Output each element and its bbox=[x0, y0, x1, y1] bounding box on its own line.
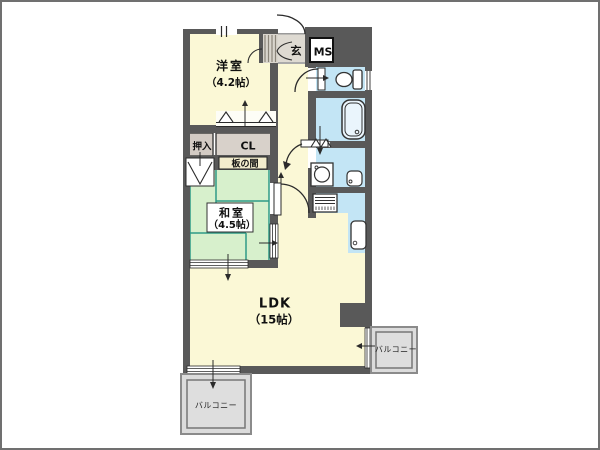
wall-ldk-pillar bbox=[340, 303, 372, 327]
washing-machine-icon bbox=[311, 163, 333, 186]
sliding-door bbox=[190, 260, 248, 268]
balcony-right-label: バルコニー bbox=[375, 346, 417, 354]
entrance-door-arc bbox=[277, 15, 305, 34]
toilet-door-gap bbox=[308, 68, 316, 91]
oshiire-label: 押入 bbox=[192, 142, 211, 152]
entrance-threshold bbox=[278, 33, 305, 35]
entrance-label: 玄 bbox=[291, 46, 302, 57]
genkan-step-edge bbox=[278, 62, 305, 64]
ldk-name: LDK bbox=[259, 298, 291, 311]
window-band bbox=[365, 71, 372, 90]
wall-hall-right2 bbox=[308, 91, 316, 143]
western-room-size: （4.2帖） bbox=[206, 78, 256, 89]
meter-box-label: MS bbox=[314, 47, 333, 58]
japanese-room-size: （4.5帖） bbox=[208, 221, 256, 231]
kitchen-sink-icon bbox=[351, 221, 366, 249]
floor-plan-drawing bbox=[2, 2, 598, 448]
itanoma-label: 板の間 bbox=[231, 161, 258, 170]
wall-left bbox=[183, 29, 190, 374]
closet-label: CL bbox=[240, 141, 255, 152]
bathtub-icon bbox=[342, 100, 365, 139]
wall-toilet-bath bbox=[308, 91, 365, 98]
wall-washitsu-bottom-r bbox=[248, 260, 278, 268]
ldk-size: （15帖） bbox=[249, 314, 300, 326]
floor-plan: 洋室 （4.2帖） 和室 （4.5帖） LDK （15帖） 玄 MS 押入 CL… bbox=[0, 0, 600, 450]
washbasin-icon bbox=[347, 171, 362, 186]
western-room-name: 洋室 bbox=[216, 60, 244, 72]
balcony-left-label: バルコニー bbox=[195, 402, 237, 410]
wall-washroom-kitchen bbox=[308, 187, 365, 193]
wall-hall-right1 bbox=[308, 63, 316, 68]
stove-icon bbox=[313, 194, 337, 212]
wall-washitsu-bottom-l bbox=[183, 260, 190, 268]
japanese-room-name: 和室 bbox=[219, 208, 245, 219]
